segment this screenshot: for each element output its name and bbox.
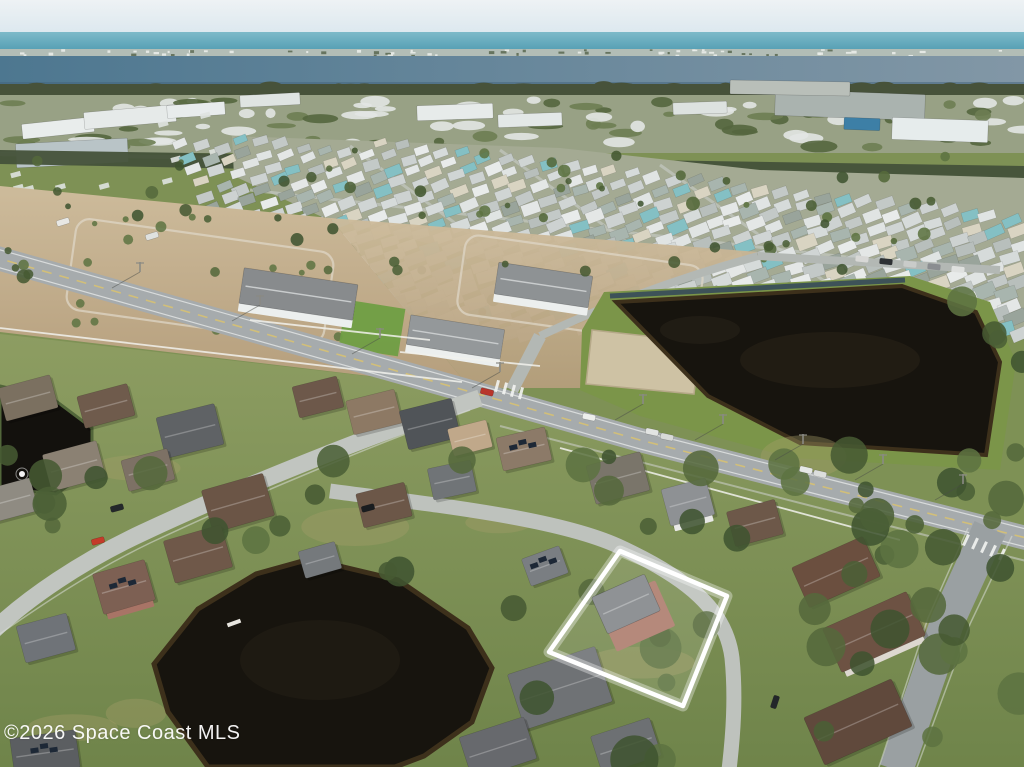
tree (988, 481, 1024, 517)
tree (65, 203, 71, 209)
tree (870, 610, 909, 649)
tree (274, 214, 281, 221)
tree (986, 554, 1014, 582)
tree (501, 595, 527, 621)
tree (476, 211, 483, 218)
tree (269, 515, 290, 536)
tree (520, 680, 555, 715)
tree (175, 162, 184, 171)
tree (242, 526, 270, 554)
tree (922, 726, 943, 747)
tree (820, 219, 829, 228)
aerial-photo: ©2026 Space Coast MLS (0, 0, 1024, 767)
tree (837, 172, 849, 184)
tree (505, 203, 511, 209)
tree (837, 264, 848, 275)
tree (145, 186, 158, 199)
tree (202, 517, 229, 544)
tree (5, 247, 12, 254)
tree (594, 476, 624, 506)
tree (947, 286, 977, 316)
tree (910, 587, 946, 623)
tree (937, 468, 967, 498)
tree (379, 562, 397, 580)
tree (851, 233, 860, 242)
lagoon (0, 56, 1024, 88)
tree (918, 227, 931, 240)
tree (599, 185, 605, 191)
tree (12, 264, 19, 271)
tree (133, 456, 167, 490)
scene-canvas (0, 0, 1024, 767)
tree (814, 721, 835, 742)
tree (18, 260, 29, 271)
tree (32, 156, 43, 167)
pond-fountain (19, 471, 25, 477)
watermark-text: ©2026 Space Coast MLS (4, 722, 240, 745)
tree (925, 529, 962, 566)
tree (278, 176, 289, 187)
tree (849, 498, 864, 513)
tree (565, 178, 571, 184)
tree (84, 466, 107, 489)
tree (989, 330, 1007, 348)
tree (580, 266, 591, 277)
tree (710, 242, 721, 253)
tree (807, 627, 846, 666)
tree (782, 240, 789, 247)
tree (841, 561, 867, 587)
tree (326, 165, 332, 171)
tree (132, 210, 144, 222)
tree (448, 446, 475, 473)
tree (938, 614, 969, 645)
tree (850, 651, 875, 676)
tree (566, 447, 601, 482)
tree (638, 201, 644, 207)
tree (305, 484, 325, 504)
tree (327, 223, 338, 234)
tree (983, 511, 1001, 529)
tree (940, 152, 950, 162)
tree (640, 518, 657, 535)
tree (858, 482, 874, 498)
tree (723, 525, 750, 552)
tree (557, 184, 566, 193)
tree (860, 498, 895, 533)
tree (764, 241, 774, 251)
tree (23, 269, 33, 279)
tree (679, 509, 705, 535)
tree (683, 450, 719, 486)
tree (210, 267, 220, 277)
tree (324, 266, 333, 275)
tree (291, 233, 304, 246)
tree (479, 148, 489, 158)
tree (668, 256, 680, 268)
tree (905, 515, 924, 534)
tree (204, 215, 212, 223)
tree (1006, 443, 1024, 461)
tree (831, 436, 868, 473)
tree (317, 445, 350, 478)
tree (32, 487, 66, 521)
tree (123, 216, 129, 222)
tree (502, 261, 509, 268)
tree (344, 182, 356, 194)
tree (179, 204, 191, 216)
tree (306, 172, 316, 182)
tree (602, 450, 617, 465)
tree (799, 593, 831, 625)
tree (53, 187, 62, 196)
tree (957, 448, 981, 472)
tree (389, 257, 399, 267)
